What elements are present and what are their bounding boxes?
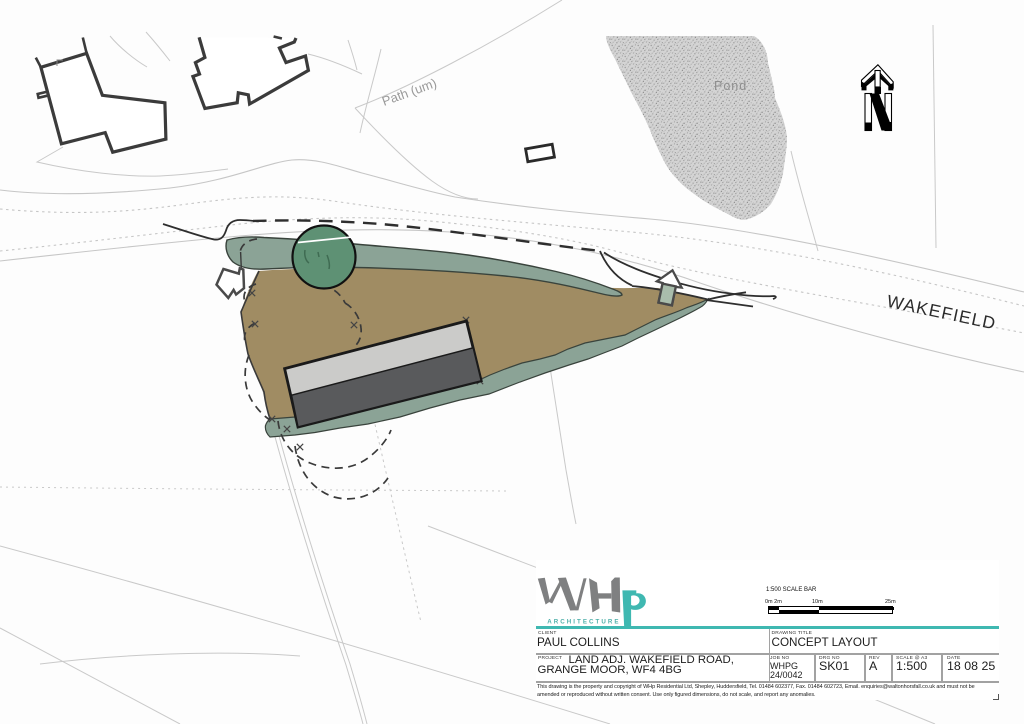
svg-text:Pond: Pond (714, 79, 747, 93)
svg-text:ARCHITECTURE: ARCHITECTURE (547, 618, 620, 625)
svg-text:WAKEFIELD: WAKEFIELD (885, 291, 998, 334)
svg-text:Path (um): Path (um) (380, 75, 439, 109)
